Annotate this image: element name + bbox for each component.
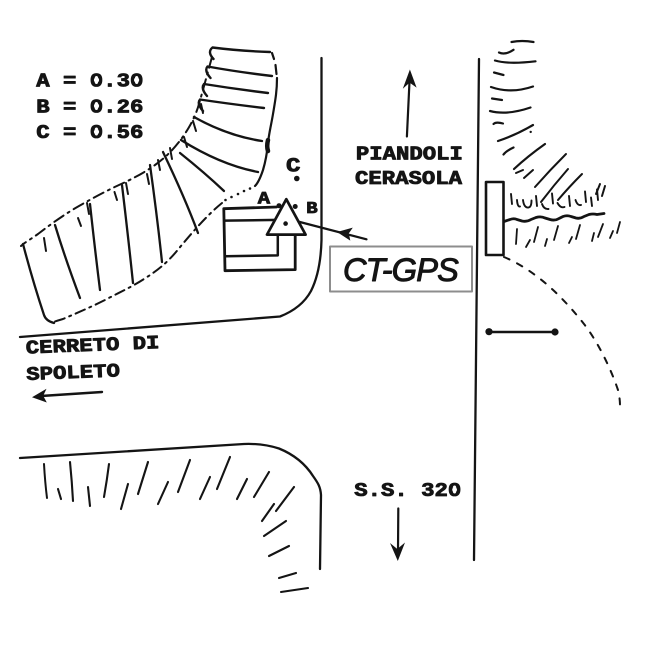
svg-text:PIANDOLI: PIANDOLI bbox=[356, 145, 463, 166]
svg-text:SPOLETO: SPOLETO bbox=[26, 362, 120, 387]
svg-text:B: B bbox=[306, 200, 318, 218]
svg-text:B = 0.26: B = 0.26 bbox=[36, 98, 143, 119]
svg-text:C: C bbox=[286, 154, 300, 178]
svg-text:A: A bbox=[258, 189, 271, 209]
svg-text:A = 0.30: A = 0.30 bbox=[36, 72, 143, 93]
svg-text:C = 0.56: C = 0.56 bbox=[36, 124, 143, 145]
svg-text:CERASOLA: CERASOLA bbox=[355, 169, 463, 190]
svg-text:CT-GPS: CT-GPS bbox=[343, 252, 459, 288]
svg-text:S.S. 320: S.S. 320 bbox=[354, 481, 461, 502]
